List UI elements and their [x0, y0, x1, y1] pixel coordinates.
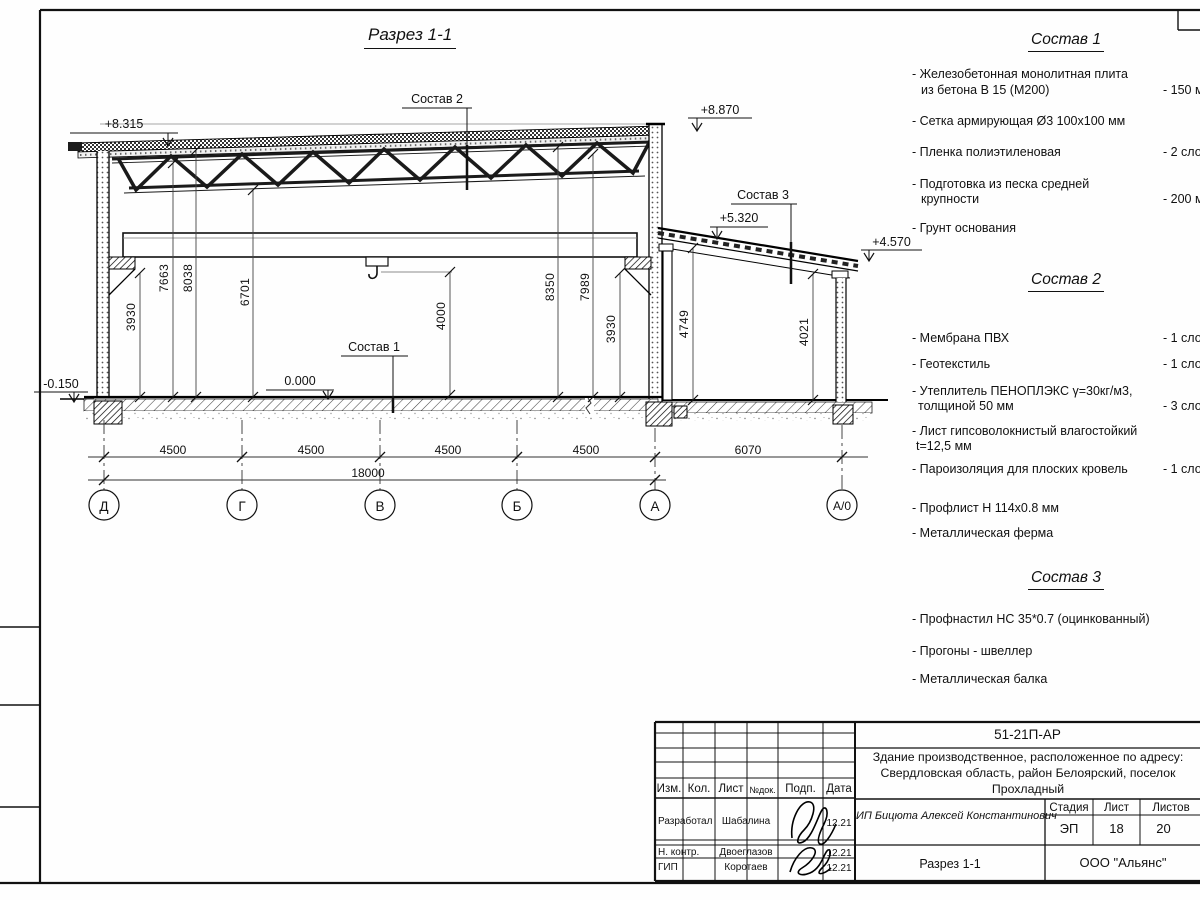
dim-span-3: 4500: [418, 444, 478, 458]
axis-bubble-g: Г: [226, 499, 258, 515]
dim-7663: 7663: [157, 238, 171, 318]
axis-bubble-b: Б: [501, 499, 533, 515]
elevation-ground: -0.150: [34, 377, 88, 391]
row3-name: Коротаев: [716, 862, 776, 874]
spec2-item4-line1: - Лист гипсоволокнистый влагостойкий: [912, 424, 1137, 438]
spec3-item3-line1: - Металлическая балка: [912, 672, 1047, 686]
spec2-item7-line1: - Металлическая ферма: [912, 526, 1053, 540]
elevation-annex-low: +4.570: [861, 235, 922, 249]
elevation-annex-high: +5.320: [710, 211, 768, 225]
dim-7989: 7989: [578, 247, 592, 327]
axis-bubble-a0: А/0: [826, 500, 858, 514]
drawing-title: Разрез 1-1: [364, 25, 456, 49]
axis-bubble-a: А: [639, 499, 671, 515]
spec1-item1-line2: из бетона В 15 (М200): [921, 83, 1049, 97]
axis-bubble-d: Д: [88, 499, 120, 515]
drawing-sheet: Разрез 1-1 +8.315 +8.870 +5.320 +4.570 -…: [0, 0, 1200, 900]
spec3-item1-line1: - Профнастил НС 35*0.7 (оцинкованный): [912, 612, 1150, 626]
row3-role: ГИП: [658, 862, 678, 874]
sheet-title: Разрез 1-1: [855, 857, 1045, 871]
doc-number: 51-21П-АР: [855, 727, 1200, 743]
dim-3930-right: 3930: [604, 289, 618, 369]
dim-3930-left: 3930: [124, 277, 138, 357]
dim-8038: 8038: [181, 238, 195, 318]
company-name: ООО "Альянс": [1048, 856, 1198, 871]
spec1-item5-line1: - Грунт основания: [912, 221, 1016, 235]
col-ndok: №док.: [747, 785, 778, 795]
spec1-title: Состав 1: [1028, 31, 1104, 52]
client-name: ИП Бицюта Алексей Константинович: [856, 810, 1044, 823]
stage-label: Стадия: [1045, 802, 1093, 815]
dim-total: 18000: [338, 467, 398, 481]
spec2-item3-line2: толщиной 50 мм: [918, 399, 1014, 413]
row2-date: 12.21: [824, 848, 854, 860]
dim-4021: 4021: [797, 292, 811, 372]
row1-name: Шабалина: [716, 816, 776, 828]
floor-slab: [60, 397, 888, 426]
spec2-item4-line2: t=12,5 мм: [916, 439, 972, 453]
spec2-item1-line1: - Мембрана ПВХ: [912, 331, 1009, 345]
row1-date: 12.21: [824, 818, 854, 830]
row1-role: Разработал: [658, 816, 712, 828]
sheets-value: 20: [1140, 822, 1187, 837]
spec2-item2-qty: - 1 сло: [1163, 357, 1200, 371]
spec1-item3-qty: - 2 сло: [1163, 145, 1200, 159]
spec2-title: Состав 2: [1028, 271, 1104, 292]
elevation-parapet-right: +8.870: [688, 103, 752, 117]
col-kol: Кол.: [683, 783, 715, 796]
axis-bubbles: [89, 490, 857, 520]
project-line-3: Прохладный: [858, 782, 1198, 796]
dim-4000: 4000: [434, 276, 448, 356]
spec2-item5-qty: - 1 сло: [1163, 462, 1200, 476]
elevation-floor-zero: 0.000: [266, 374, 334, 388]
spec2-item1-qty: - 1 сло: [1163, 331, 1200, 345]
stage-value: ЭП: [1045, 822, 1093, 837]
col-list: Лист: [715, 783, 747, 796]
col-podp: Подп.: [778, 783, 823, 796]
dim-span-1: 4500: [143, 444, 203, 458]
dim-8350: 8350: [543, 247, 557, 327]
col-data: Дата: [823, 783, 855, 796]
spec1-item3-line1: - Пленка полиэтиленовая: [912, 145, 1061, 159]
row2-role: Н. контр.: [658, 847, 699, 859]
spec3-title: Состав 3: [1028, 569, 1104, 590]
col-izm: Изм.: [655, 783, 683, 796]
spec1-item4-line2: крупности: [921, 192, 979, 206]
leader-sostav3: Состав 3: [728, 188, 798, 202]
row2-name: Двоеглазов: [714, 847, 778, 859]
leader-sostav1: Состав 1: [339, 340, 409, 354]
spec1-item2-line1: - Сетка армирующая Ø3 100х100 мм: [912, 114, 1125, 128]
leader-sostav2: Состав 2: [402, 92, 472, 106]
spec1-item4-qty: - 200 м: [1163, 192, 1200, 206]
spec2-item6-line1: - Профлист Н 114х0.8 мм: [912, 501, 1059, 515]
dim-span-2: 4500: [281, 444, 341, 458]
sheets-label: Листов: [1142, 802, 1200, 815]
sheet-label: Лист: [1093, 802, 1140, 815]
axis-bubble-v: В: [364, 499, 396, 515]
dim-4749: 4749: [677, 284, 691, 364]
dim-span-4: 4500: [556, 444, 616, 458]
row3-date: 12.21: [824, 863, 854, 875]
spec1-item1-line1: - Железобетонная монолитная плита: [912, 67, 1128, 81]
spec2-item3-line1: - Утеплитель ПЕНОПЛЭКС γ=30кг/м3,: [912, 384, 1132, 398]
spec2-item5-line1: - Пароизоляция для плоских кровель: [912, 462, 1128, 476]
spec3-item2-line1: - Прогоны - швеллер: [912, 644, 1032, 658]
project-line-2: Свердловская область, район Белоярский, …: [858, 766, 1198, 780]
spec2-item3-qty: - 3 сло: [1163, 399, 1200, 413]
sheet-value: 18: [1093, 822, 1140, 837]
spec2-item2-line1: - Геотекстиль: [912, 357, 990, 371]
dim-chains: [88, 457, 868, 480]
elevation-roof-left: +8.315: [76, 117, 172, 131]
spec1-item1-qty: - 150 м: [1163, 83, 1200, 97]
dim-6701: 6701: [238, 252, 252, 332]
project-line-1: Здание производственное, расположенное п…: [858, 750, 1198, 764]
spec1-item4-line1: - Подготовка из песка средней: [912, 177, 1089, 191]
dim-span-5: 6070: [718, 444, 778, 458]
